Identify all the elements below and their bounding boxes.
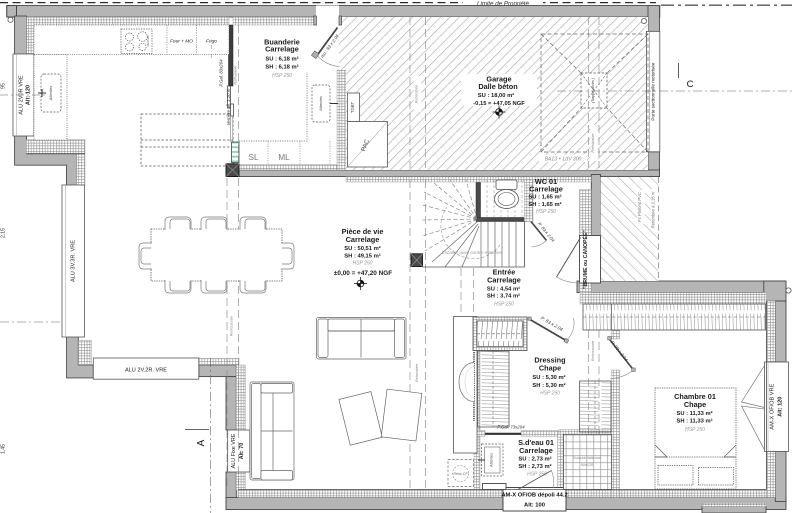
- svg-text:HSP 250: HSP 250: [494, 302, 514, 308]
- svg-text:SU : 5,30 m²: SU : 5,30 m²: [532, 374, 565, 381]
- svg-text:Retombée: Retombée: [414, 363, 419, 382]
- svg-text:P.Gal. 83x204: P.Gal. 83x204: [219, 59, 224, 87]
- svg-text:Carrelage: Carrelage: [529, 185, 563, 194]
- svg-text:Attentes: Attentes: [490, 453, 494, 468]
- svg-text:Alt: 70: Alt: 70: [239, 443, 245, 459]
- svg-text:A: A: [196, 439, 207, 446]
- svg-text:TGBT: TGBT: [350, 101, 355, 113]
- svg-text:HSP 250: HSP 250: [353, 261, 373, 267]
- svg-text:SH : 5,30 m²: SH : 5,30 m²: [532, 382, 565, 389]
- svg-text:SU : 11,33 m²: SU : 11,33 m²: [676, 410, 712, 417]
- svg-text:(Trappe accès ): (Trappe accès ): [591, 78, 595, 103]
- svg-text:C: C: [687, 79, 694, 90]
- svg-text:Refoulable: Refoulable: [590, 133, 595, 153]
- svg-text:Verrière all. 1,20 m: Verrière all. 1,20 m: [226, 88, 231, 125]
- svg-text:ALU 3V.3R. VRE: ALU 3V.3R. VRE: [71, 240, 77, 282]
- svg-text:±0,00 = +47,20 NGF: ±0,00 = +47,20 NGF: [334, 270, 392, 277]
- svg-text:2,15: 2,15: [1, 228, 7, 238]
- svg-text:DESSUS: DESSUS: [146, 35, 150, 46]
- svg-text:SU : 4,54 m²: SU : 4,54 m²: [487, 286, 520, 293]
- svg-text:SH : 1,65 m²: SH : 1,65 m²: [528, 201, 561, 208]
- svg-text:Porte sectionnelle motorisée: Porte sectionnelle motorisée: [651, 62, 656, 120]
- svg-text:P.Gal. 73x204: P.Gal. 73x204: [497, 425, 525, 430]
- svg-text:SL: SL: [248, 153, 258, 162]
- svg-text:SU : 6,18 m²: SU : 6,18 m²: [265, 56, 298, 63]
- svg-text:90x120: 90x120: [581, 463, 593, 467]
- svg-text:SH : 2,73 m²: SH : 2,73 m²: [518, 463, 551, 470]
- svg-text:"BRUME ou CANOPÉE": "BRUME ou CANOPÉE": [581, 230, 589, 289]
- svg-text:SU : 2,73 m²: SU : 2,73 m²: [518, 456, 551, 463]
- svg-text:Retroussée: Retroussée: [229, 315, 234, 336]
- svg-text:Retroussée: Retroussée: [590, 340, 595, 361]
- svg-text:SU : 18,00 m²: SU : 18,00 m²: [478, 92, 514, 99]
- svg-text:ALU 2V.2R. VRE: ALU 2V.2R. VRE: [125, 368, 167, 374]
- svg-text:Dalle béton: Dalle béton: [478, 82, 517, 91]
- svg-text:95: 95: [1, 83, 7, 89]
- svg-text:Chape: Chape: [684, 400, 706, 409]
- svg-text:Carrelage: Carrelage: [487, 276, 521, 285]
- svg-text:SH : 49,15 m²: SH : 49,15 m²: [344, 253, 380, 260]
- svg-text:SH : 11,33 m²: SH : 11,33 m²: [676, 418, 712, 425]
- svg-text:SH : 6,18 m²: SH : 6,18 m²: [265, 64, 298, 71]
- svg-text:Retombée: Retombée: [414, 84, 419, 103]
- svg-text:Four + MO: Four + MO: [170, 39, 193, 45]
- svg-text:Escalier avec contre-marches: Escalier avec contre-marches: [442, 250, 503, 255]
- svg-text:Alt: 100: Alt: 100: [524, 503, 545, 509]
- svg-text:Carrelage: Carrelage: [346, 235, 380, 244]
- svg-text:1,45: 1,45: [1, 444, 7, 454]
- svg-text:Attentes: Attentes: [48, 86, 53, 102]
- svg-text:Frigo: Frigo: [206, 39, 217, 45]
- svg-text:HSP 250: HSP 250: [536, 209, 556, 215]
- svg-text:Refoulable: Refoulable: [233, 65, 238, 85]
- svg-text:Carrelage: Carrelage: [265, 45, 299, 54]
- svg-text:Retombée à 2,35 m: Retombée à 2,35 m: [651, 191, 656, 228]
- svg-text:AM-X OF/OB VRE: AM-X OF/OB VRE: [770, 383, 776, 429]
- svg-text:Alt: 120: Alt: 120: [778, 397, 784, 417]
- svg-text:Chape: Chape: [539, 364, 561, 373]
- svg-text:Carrelage: Carrelage: [519, 446, 553, 455]
- svg-text:Attentes: Attentes: [318, 96, 323, 112]
- svg-text:Fx Plafond PVC: Fx Plafond PVC: [637, 191, 642, 222]
- svg-text:AM-X OF/OB dépoli 44.2: AM-X OF/OB dépoli 44.2: [501, 493, 567, 499]
- svg-text:Réso CF: Réso CF: [453, 472, 468, 476]
- svg-text:SU : 1,65 m²: SU : 1,65 m²: [528, 194, 561, 201]
- svg-text:ML: ML: [278, 153, 290, 162]
- svg-text:SU : 50,51 m²: SU : 50,51 m²: [344, 245, 380, 252]
- svg-text:ALU Fixe VRE: ALU Fixe VRE: [231, 433, 237, 468]
- svg-text:HSP 250: HSP 250: [685, 427, 705, 433]
- svg-text:HSP 250: HSP 250: [272, 73, 292, 79]
- svg-text:HSP 250: HSP 250: [540, 391, 560, 397]
- svg-text:SH : 3,74 m²: SH : 3,74 m²: [487, 293, 520, 300]
- svg-text:BA13 + LdV 300: BA13 + LdV 300: [545, 157, 582, 163]
- svg-text:Douche italienne: Douche italienne: [573, 456, 601, 460]
